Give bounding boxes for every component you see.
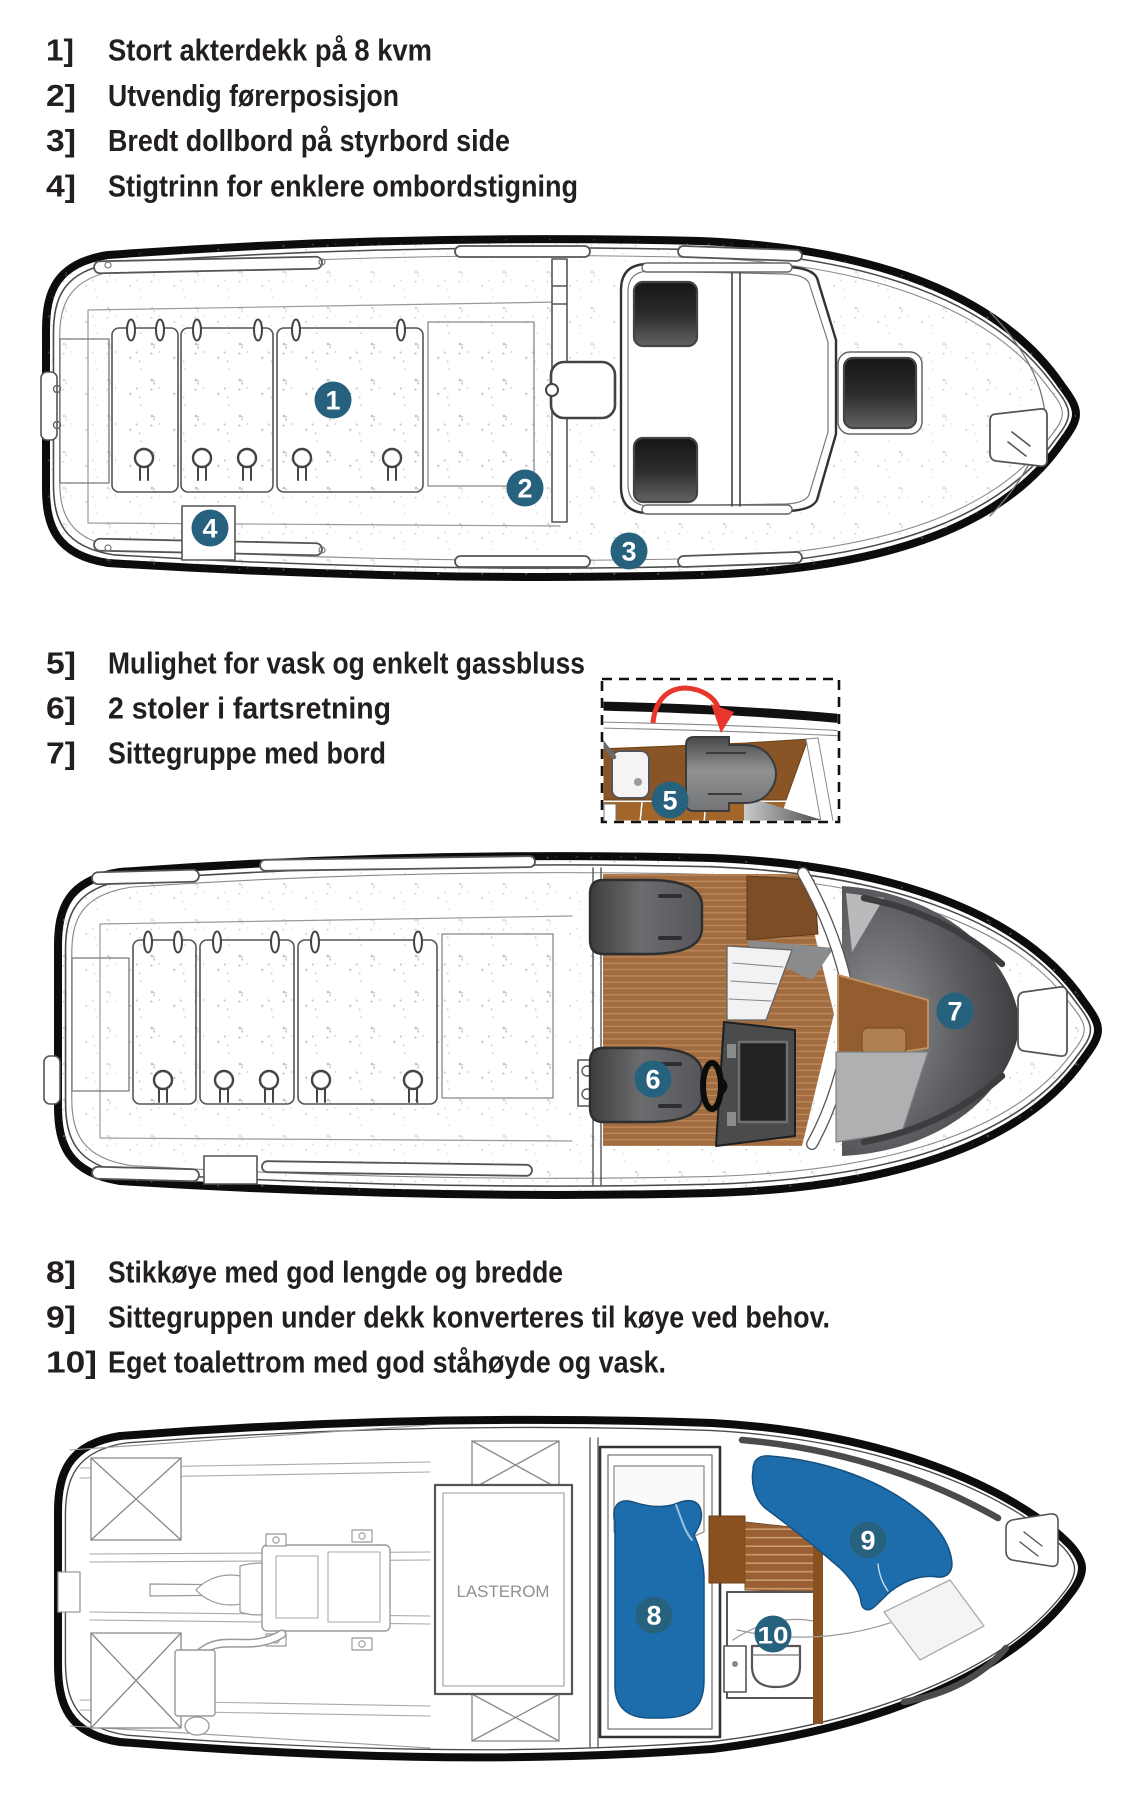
svg-text:2 stoler i fartsretning: 2 stoler i fartsretning xyxy=(108,692,391,726)
svg-text:2]: 2] xyxy=(46,79,76,113)
svg-text:5]: 5] xyxy=(46,647,76,681)
svg-text:8]: 8] xyxy=(46,1256,76,1290)
svg-text:Eget toalettrom med god ståhøy: Eget toalettrom med god ståhøyde og vask… xyxy=(108,1346,666,1380)
svg-text:7: 7 xyxy=(947,997,962,1027)
svg-text:10: 10 xyxy=(758,1623,789,1650)
svg-text:3: 3 xyxy=(621,537,636,567)
svg-text:1]: 1] xyxy=(46,34,74,68)
svg-text:9: 9 xyxy=(860,1526,875,1556)
svg-text:Bredt dollbord på styrbord sid: Bredt dollbord på styrbord side xyxy=(108,124,510,158)
svg-text:7]: 7] xyxy=(46,737,76,771)
svg-text:8: 8 xyxy=(646,1601,661,1631)
svg-text:Stort akterdekk på 8 kvm: Stort akterdekk på 8 kvm xyxy=(108,34,432,68)
svg-text:Stigtrinn for enklere ombordst: Stigtrinn for enklere ombordstigning xyxy=(108,170,578,204)
svg-text:3]: 3] xyxy=(46,124,76,158)
svg-text:6]: 6] xyxy=(46,692,76,726)
svg-text:Utvendig førerposisjon: Utvendig førerposisjon xyxy=(108,79,399,113)
svg-text:9]: 9] xyxy=(46,1301,76,1335)
svg-text:Sittegruppen under dekk konver: Sittegruppen under dekk konverteres til … xyxy=(108,1301,830,1335)
svg-text:4]: 4] xyxy=(46,170,76,204)
svg-text:10]: 10] xyxy=(46,1346,97,1380)
svg-text:Stikkøye med god lengde og bre: Stikkøye med god lengde og bredde xyxy=(108,1256,563,1290)
svg-text:Mulighet for vask og enkelt ga: Mulighet for vask og enkelt gassbluss xyxy=(108,647,585,681)
svg-text:2: 2 xyxy=(517,474,532,504)
svg-text:1: 1 xyxy=(325,386,340,416)
svg-text:4: 4 xyxy=(202,514,217,544)
svg-text:6: 6 xyxy=(645,1065,660,1095)
svg-text:LASTEROM: LASTEROM xyxy=(457,1583,550,1601)
svg-text:5: 5 xyxy=(662,786,677,816)
svg-text:Sittegruppe med bord: Sittegruppe med bord xyxy=(108,737,386,771)
